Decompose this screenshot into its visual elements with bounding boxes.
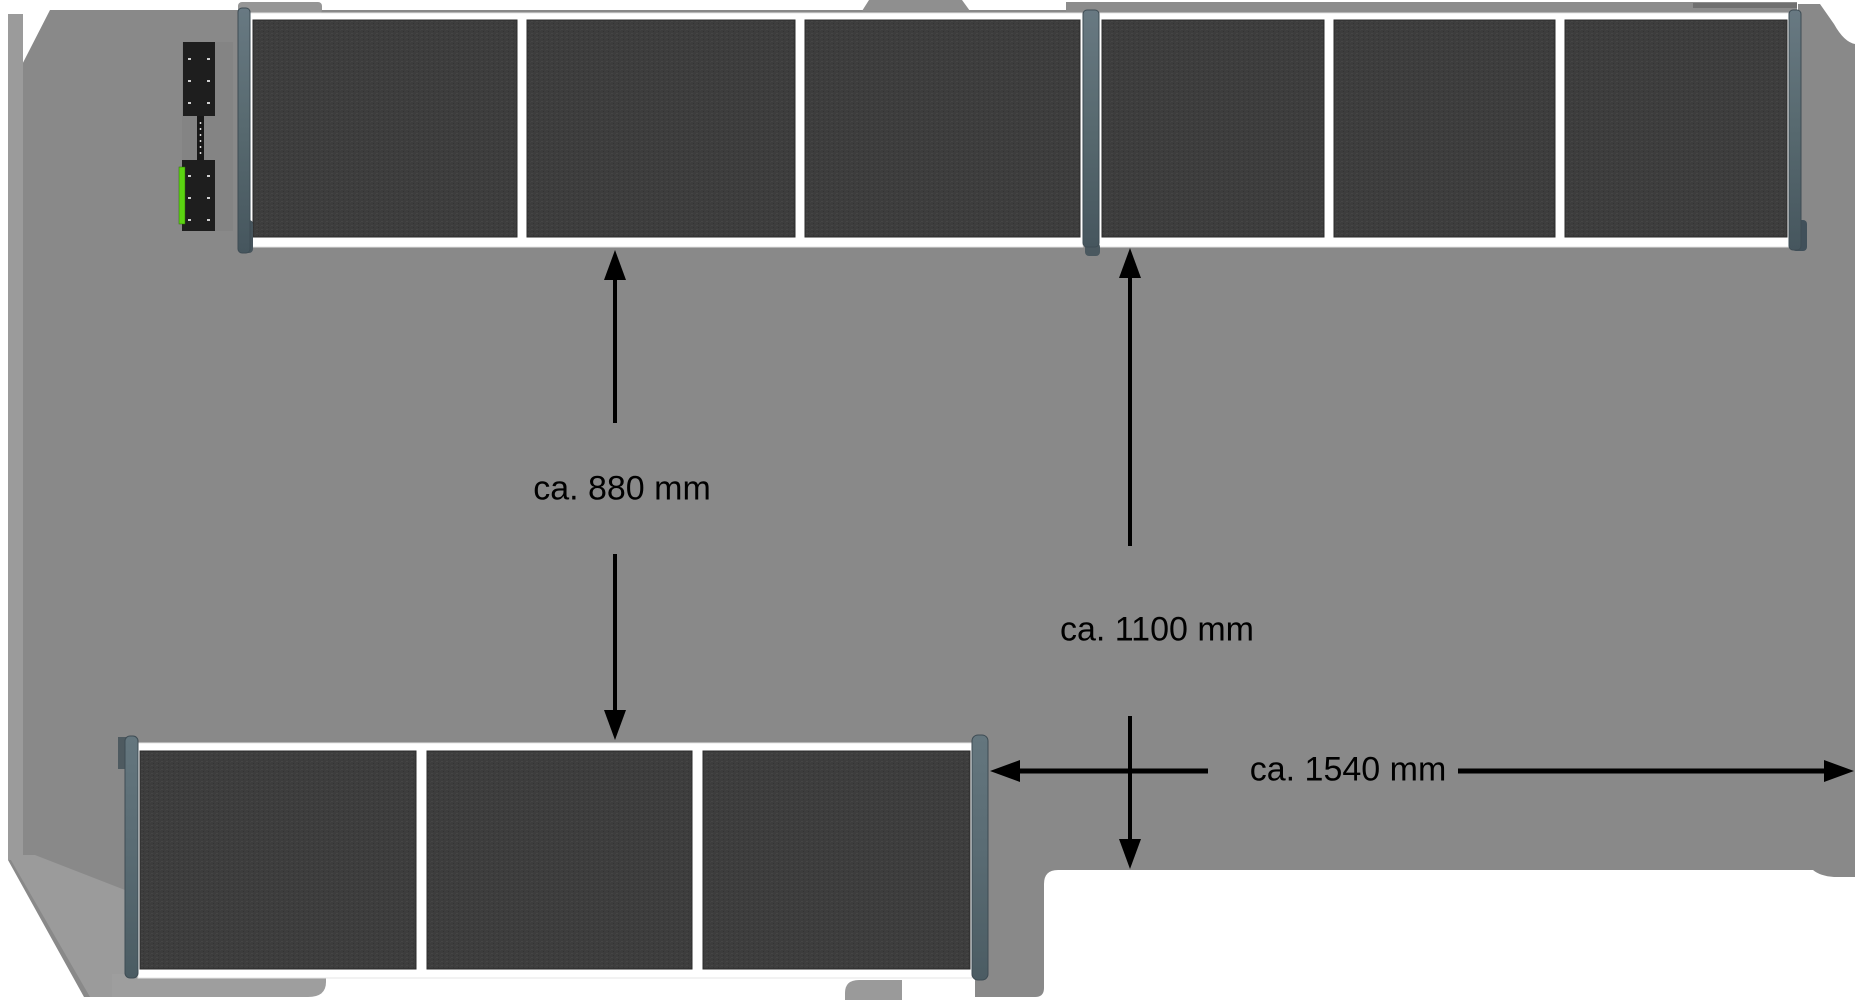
roof-top-tab-left — [238, 2, 322, 14]
post — [1083, 10, 1099, 247]
front-panel-row — [238, 8, 1807, 256]
dimension-label-1540: ca. 1540 mm — [1250, 751, 1447, 790]
roof-top-rail-dark-strip — [1693, 3, 1797, 8]
roof-left-edge-highlight — [8, 14, 23, 860]
panel — [1334, 20, 1555, 237]
dimension-label-880: ca. 880 mm — [533, 470, 711, 509]
rear-panel-row — [118, 735, 988, 980]
roof-bottom-skirt-right — [845, 980, 902, 1000]
panel — [253, 20, 517, 237]
panel — [805, 20, 1080, 237]
dimension-label-1100: ca. 1100 mm — [1060, 611, 1254, 650]
post — [972, 735, 988, 980]
roof-panel-layout-diagram: ca. 880 mm ca. 1100 mm ca. 1540 mm — [0, 0, 1855, 1000]
diagram-graphics — [0, 0, 1855, 1000]
post — [125, 736, 138, 978]
panel — [140, 751, 416, 969]
roof-top-rail-strip — [1066, 2, 1797, 12]
panel — [427, 751, 692, 969]
bracket-lower-block — [182, 160, 215, 231]
roof-mount-bracket — [179, 42, 233, 231]
roof-top-tab-middle — [862, 0, 970, 11]
bracket-green-strip — [179, 167, 185, 224]
panel — [527, 20, 795, 237]
post — [1789, 10, 1801, 250]
panel — [703, 751, 970, 969]
post — [238, 8, 250, 253]
bracket-upper-block — [183, 42, 215, 116]
panel — [1102, 20, 1324, 237]
panel — [1565, 20, 1787, 237]
